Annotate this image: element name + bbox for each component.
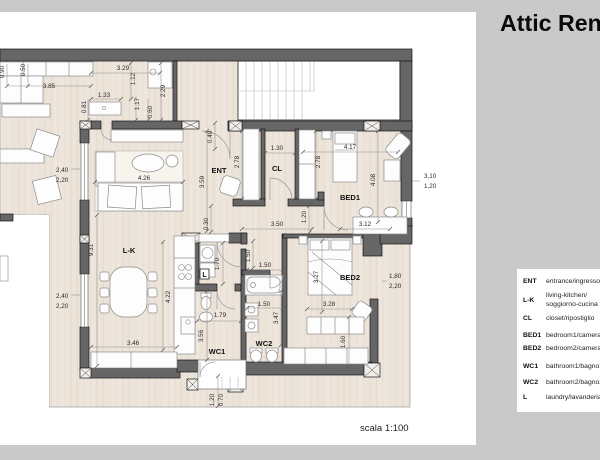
svg-text:1.60: 1.60 (340, 335, 347, 348)
svg-text:1.17: 1.17 (134, 97, 141, 110)
svg-text:1,20: 1,20 (209, 393, 216, 406)
svg-text:L: L (523, 394, 527, 401)
svg-text:2,20: 2,20 (389, 283, 402, 290)
svg-text:2,40: 2,40 (56, 293, 69, 300)
svg-text:3.59: 3.59 (199, 175, 206, 188)
svg-text:laundry/lavanderia: laundry/lavanderia (546, 394, 600, 401)
svg-text:scala 1:100: scala 1:100 (360, 423, 409, 434)
svg-text:4.26: 4.26 (138, 175, 151, 182)
svg-text:2.78: 2.78 (234, 155, 241, 168)
svg-text:soggiorno-cucina: soggiorno-cucina (546, 301, 598, 308)
svg-text:L: L (202, 272, 207, 279)
svg-text:bathroom1/bagno1: bathroom1/bagno1 (546, 363, 600, 370)
svg-text:BED1: BED1 (340, 193, 360, 202)
svg-text:4.22: 4.22 (165, 290, 172, 303)
svg-text:3.46: 3.46 (127, 340, 140, 347)
svg-text:WC1: WC1 (523, 363, 538, 370)
svg-text:2,20: 2,20 (56, 303, 69, 310)
svg-text:2,20: 2,20 (56, 177, 69, 184)
svg-text:ENT: ENT (212, 166, 227, 175)
svg-text:3.85: 3.85 (43, 83, 56, 90)
svg-text:CL: CL (523, 315, 532, 322)
svg-text:bedroom2/camera2: bedroom2/camera2 (546, 345, 600, 352)
svg-text:0.50: 0.50 (20, 63, 27, 76)
svg-text:3.29: 3.29 (117, 65, 130, 72)
svg-text:1.50: 1.50 (259, 262, 272, 269)
svg-text:3,10: 3,10 (424, 173, 437, 180)
svg-text:0.49: 0.49 (207, 130, 214, 143)
svg-text:living-kitchen/: living-kitchen/ (546, 292, 587, 299)
svg-text:BED2: BED2 (340, 273, 360, 282)
svg-text:bathroom2/bagno2: bathroom2/bagno2 (546, 379, 600, 386)
svg-text:3.56: 3.56 (198, 329, 205, 342)
svg-text:9.31: 9.31 (88, 243, 95, 256)
svg-text:1.50: 1.50 (258, 301, 271, 308)
svg-text:1,20: 1,20 (424, 183, 437, 190)
svg-text:3.50: 3.50 (271, 221, 284, 228)
svg-text:CL: CL (272, 164, 282, 173)
svg-text:1,80: 1,80 (389, 273, 402, 280)
svg-text:ENT: ENT (523, 278, 537, 285)
svg-text:1.70: 1.70 (214, 257, 221, 270)
svg-text:L-K: L-K (523, 297, 534, 304)
svg-text:bedroom1/camera1: bedroom1/camera1 (546, 332, 600, 339)
svg-text:WC2: WC2 (256, 339, 273, 348)
svg-text:2.29: 2.29 (160, 84, 167, 97)
svg-text:WC2: WC2 (523, 379, 538, 386)
svg-text:1.79: 1.79 (214, 312, 227, 319)
svg-text:1.12: 1.12 (130, 72, 137, 85)
svg-text:WC1: WC1 (209, 347, 226, 356)
svg-text:0.90: 0.90 (0, 65, 6, 78)
svg-text:BED1: BED1 (523, 332, 541, 339)
svg-text:3.28: 3.28 (323, 301, 336, 308)
svg-text:2.78: 2.78 (315, 155, 322, 168)
svg-text:0.81: 0.81 (81, 100, 88, 113)
svg-text:1.30: 1.30 (271, 145, 284, 152)
svg-text:Attic Renovation: Attic Renovation (500, 10, 600, 36)
svg-text:entrance/ingresso: entrance/ingresso (546, 278, 600, 285)
svg-text:4.08: 4.08 (370, 173, 377, 186)
svg-text:1.33: 1.33 (98, 92, 111, 99)
svg-text:BED2: BED2 (523, 345, 541, 352)
svg-text:0.30: 0.30 (203, 217, 210, 230)
svg-text:2,40: 2,40 (56, 167, 69, 174)
svg-text:0.70: 0.70 (218, 393, 225, 406)
svg-text:3.12: 3.12 (359, 221, 372, 228)
svg-text:3.47: 3.47 (273, 311, 280, 324)
svg-text:4.17: 4.17 (344, 144, 357, 151)
svg-text:L-K: L-K (123, 246, 136, 255)
svg-text:0.60: 0.60 (147, 105, 154, 118)
svg-text:1.20: 1.20 (301, 210, 308, 223)
svg-text:3.27: 3.27 (313, 270, 320, 283)
svg-text:closet/ripostiglio: closet/ripostiglio (546, 315, 595, 322)
svg-text:1.50: 1.50 (245, 249, 252, 262)
